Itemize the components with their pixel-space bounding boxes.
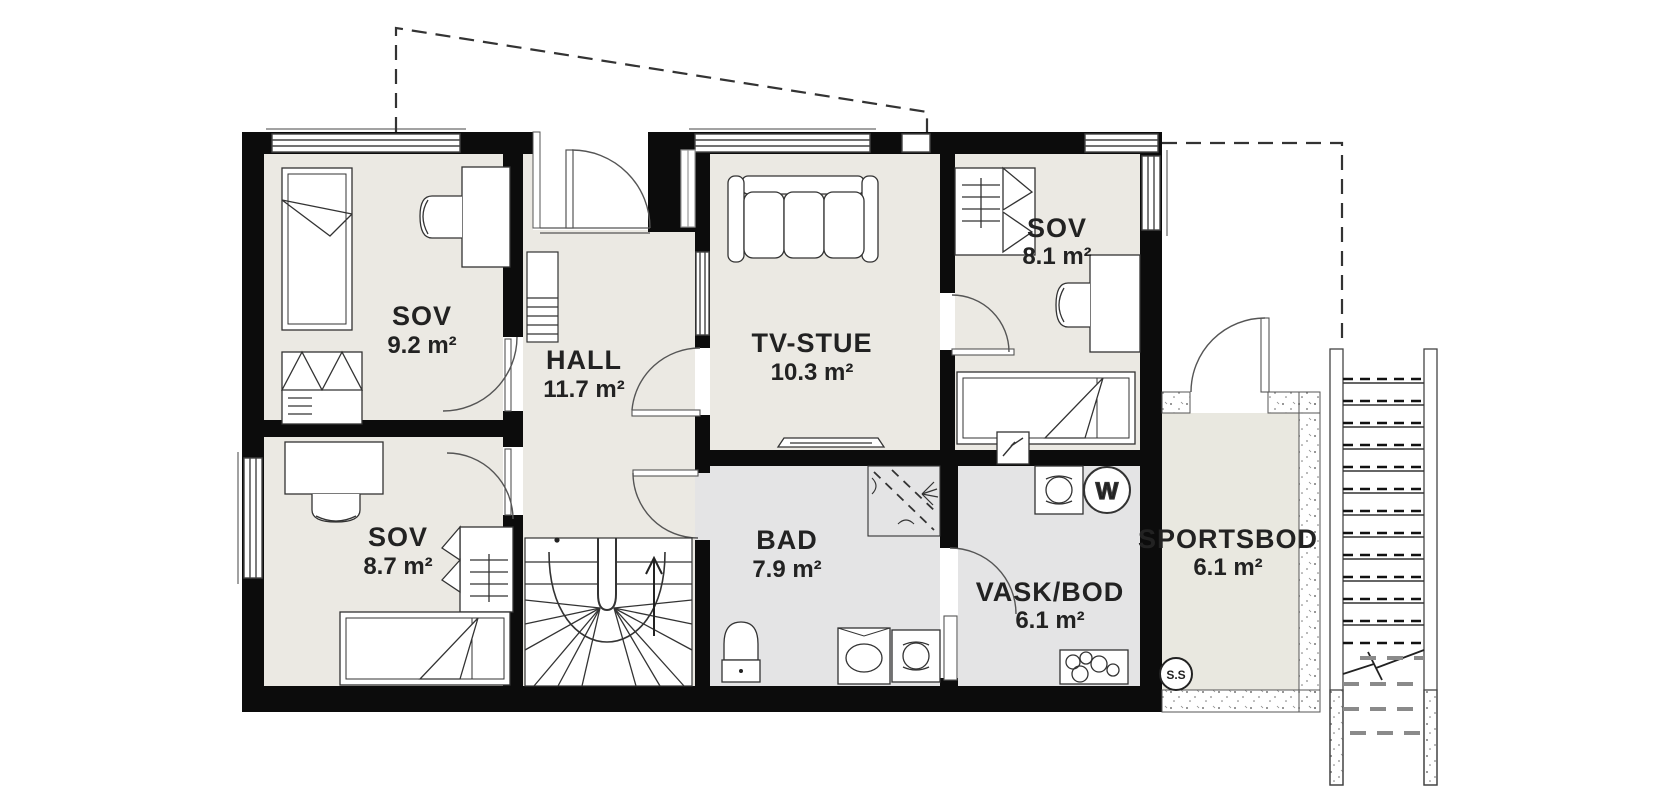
label-sov92-area: 9.2 m² xyxy=(387,332,456,359)
sofa-icon xyxy=(728,176,878,262)
toilet-icon xyxy=(722,622,760,682)
label-sov81-area: 8.1 m² xyxy=(1022,243,1091,270)
label-bad-area: 7.9 m² xyxy=(752,556,821,583)
wardrobe-icon xyxy=(282,352,362,424)
desk-icon xyxy=(1090,255,1140,352)
floor-plan-drawing: W S.S SOV 9.2 m² HALL 11.7 m² TV-STUE 10… xyxy=(0,0,1670,800)
wardrobe-icon xyxy=(955,168,1035,255)
sink-vanity-icon xyxy=(838,628,890,684)
label-hall-name: HALL xyxy=(546,345,622,375)
floor-plan: W S.S SOV 9.2 m² HALL 11.7 m² TV-STUE 10… xyxy=(0,0,1670,800)
label-sov87-name: SOV xyxy=(368,522,428,552)
chair-icon xyxy=(420,196,462,238)
bed-icon xyxy=(957,372,1135,444)
label-sov81-name: SOV xyxy=(1027,213,1087,243)
electrical-panel-icon xyxy=(997,432,1029,464)
chair-icon xyxy=(1056,283,1090,327)
internal-stairs xyxy=(525,537,692,686)
water-heater-badge: W xyxy=(1084,467,1130,513)
door-sportsbod xyxy=(1191,318,1269,392)
label-tvstue-area: 10.3 m² xyxy=(771,359,854,386)
label-bad-name: BAD xyxy=(756,525,818,555)
hall-ladder-icon xyxy=(527,252,558,342)
sports-storage-label: S.S xyxy=(1166,668,1185,682)
label-sov87-area: 8.7 m² xyxy=(363,553,432,580)
washing-machine-icon xyxy=(1035,466,1083,514)
tv-bench-icon xyxy=(778,438,884,447)
entry-sidelight-window xyxy=(681,150,695,227)
window-hall-interior xyxy=(696,252,709,335)
window-sov87-left xyxy=(238,452,262,584)
bed-icon xyxy=(340,612,510,685)
water-heater-label: W xyxy=(1096,478,1119,505)
sports-storage-badge: S.S xyxy=(1160,658,1192,690)
laundry-sink-icon xyxy=(1060,650,1128,684)
label-sov92-name: SOV xyxy=(392,301,452,331)
label-tvstue-name: TV-STUE xyxy=(751,328,872,358)
external-stairs xyxy=(1330,349,1437,785)
label-vaskbod-area: 6.1 m² xyxy=(1015,607,1084,634)
bed-icon xyxy=(282,168,352,330)
washing-machine-icon xyxy=(892,630,940,682)
label-sportsbod-name: SPORTSBOD xyxy=(1138,524,1318,554)
desk-icon xyxy=(285,442,383,494)
label-vaskbod-name: VASK/BOD xyxy=(976,577,1125,607)
label-sportsbod-area: 6.1 m² xyxy=(1193,554,1262,581)
stair-break-symbol xyxy=(1343,650,1424,680)
desk-icon xyxy=(462,167,510,267)
stair-treads xyxy=(1343,379,1424,643)
label-hall-area: 11.7 m² xyxy=(543,376,624,403)
chair-icon xyxy=(312,494,360,522)
window-sov81-right xyxy=(1142,150,1167,236)
